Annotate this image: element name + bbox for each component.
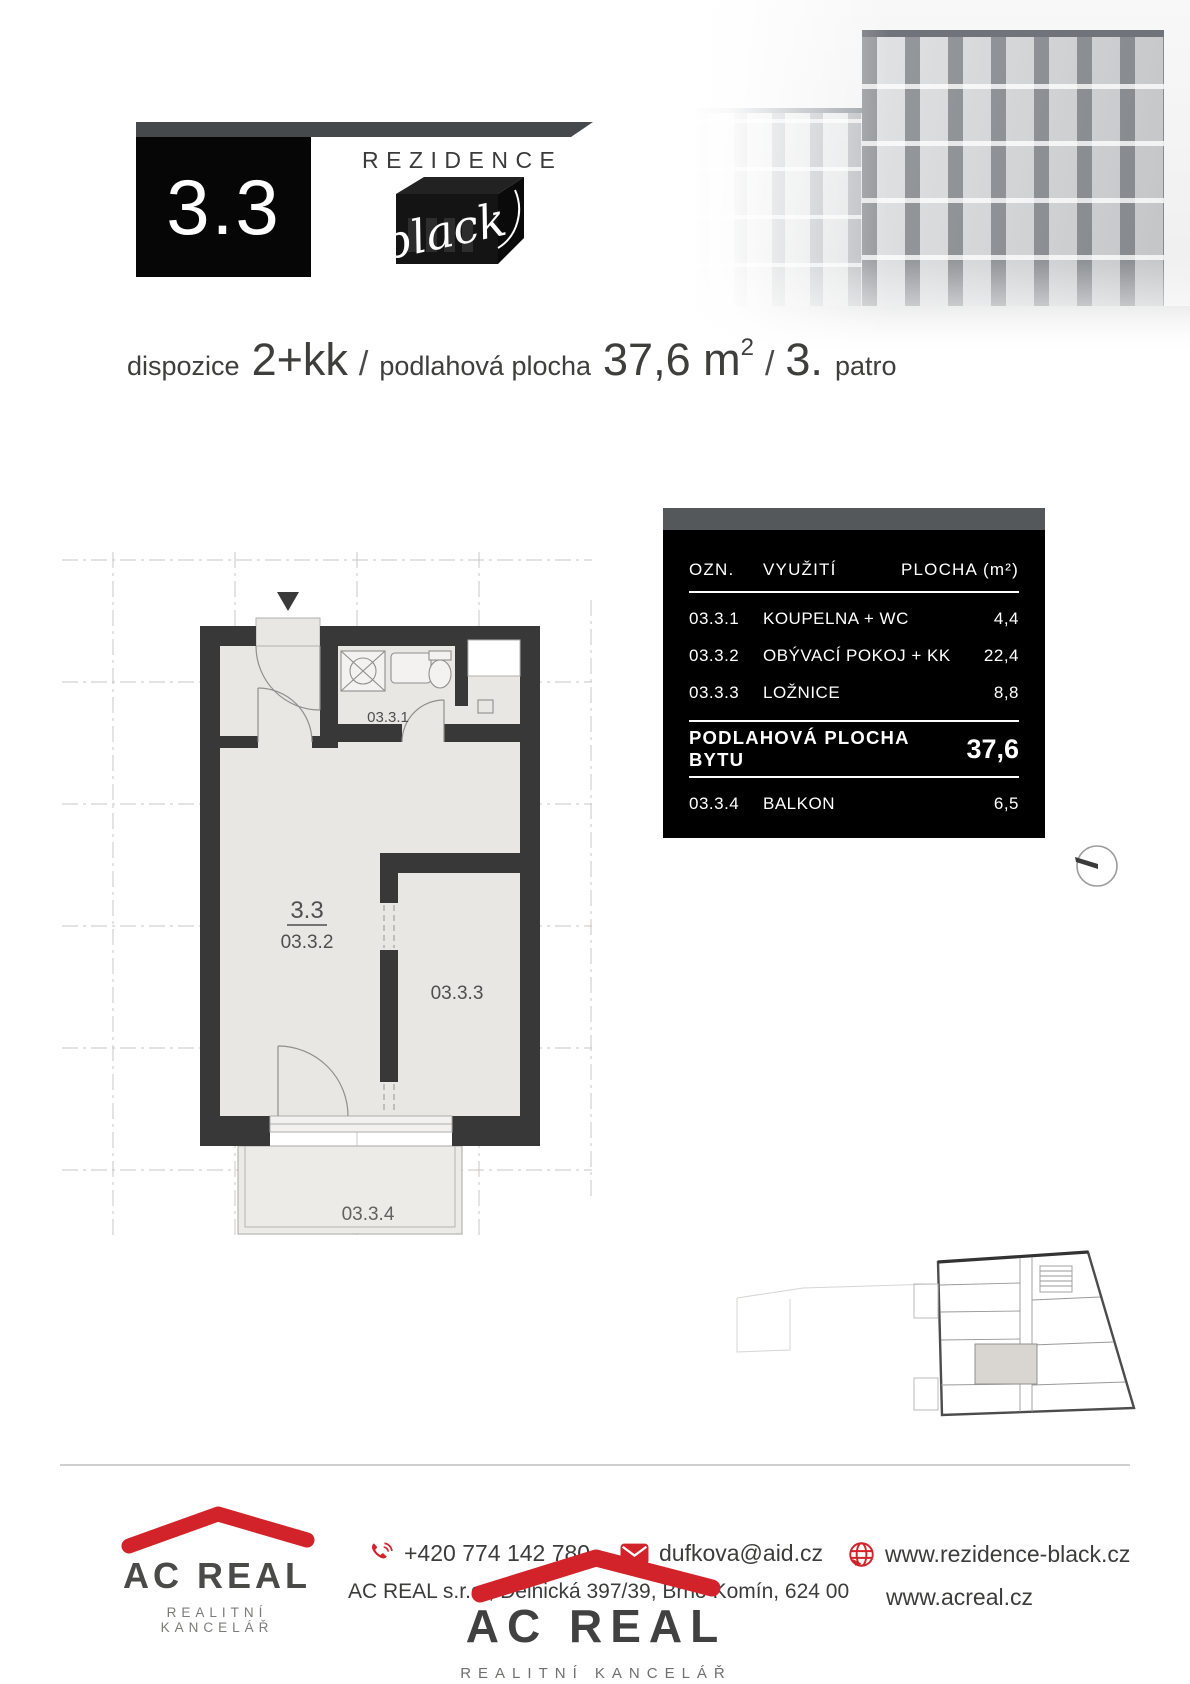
- row-use: KOUPELNA + WC: [763, 609, 994, 629]
- row-use: LOŽNICE: [763, 683, 994, 703]
- area-label: podlahová plocha: [379, 351, 591, 382]
- balcony-window: [270, 1116, 452, 1132]
- header-accent-bar: [136, 122, 593, 137]
- highlighted-unit: [975, 1344, 1037, 1384]
- project-website: www.rezidence-black.cz: [848, 1541, 1130, 1568]
- globe-icon: [848, 1541, 875, 1568]
- black-box-logo-icon: black: [374, 174, 544, 278]
- table-header-row: OZN. VYUŽITÍ PLOCHA (m²): [689, 534, 1019, 593]
- company-website-url[interactable]: www.acreal.cz: [886, 1584, 1033, 1611]
- building-outline: [914, 1252, 1134, 1415]
- brand-logo: black: [374, 174, 544, 283]
- brand-name: REZIDENCE: [362, 147, 562, 174]
- floor-value: 3.: [785, 334, 823, 386]
- row-use: OBÝVACÍ POKOJ + KK: [763, 646, 984, 666]
- layout-label: dispozice: [127, 351, 240, 382]
- toilet-tank-icon: [429, 651, 451, 660]
- separator: /: [765, 345, 774, 384]
- row-ozn: 03.3.3: [689, 683, 763, 703]
- acreal-logo-tagline: REALITNÍ KANCELÁŘ: [112, 1605, 322, 1635]
- table-row: 03.3.1 KOUPELNA + WC 4,4: [689, 600, 1019, 637]
- area-value: 37,6 m2: [603, 334, 754, 386]
- bathroom-label: 03.3.1: [367, 709, 409, 726]
- red-roof-icon: [468, 1544, 724, 1604]
- unit-number: 3.3: [166, 162, 280, 253]
- acreal-logo-text: AC REAL: [112, 1555, 322, 1597]
- entrance-arrow-icon: [277, 592, 299, 611]
- red-roof-icon: [117, 1498, 317, 1556]
- apartment-summary: dispozice 2+kk / podlahová plocha 37,6 m…: [127, 334, 896, 386]
- compass-icon: [1068, 840, 1124, 894]
- acreal-logo: AC REAL REALITNÍ KANCELÁŘ: [112, 1498, 322, 1635]
- separator: /: [359, 345, 368, 384]
- phone-icon: [368, 1541, 394, 1567]
- project-website-url[interactable]: www.rezidence-black.cz: [885, 1541, 1130, 1568]
- row-ozn: 03.3.2: [689, 646, 763, 666]
- table-balcony-row: 03.3.4 BALKON 6,5: [689, 778, 1019, 826]
- row-area: 22,4: [984, 646, 1019, 666]
- building-photo-fade: [688, 0, 1190, 352]
- floor-label: patro: [835, 351, 897, 382]
- row-area: 6,5: [994, 794, 1019, 814]
- floorplan-drawing: 3.3 03.3.2 03.3.1 03.3.3 03.3.4: [55, 540, 600, 1250]
- header-use: VYUŽITÍ: [763, 560, 901, 580]
- bedroom-label: 03.3.3: [431, 983, 484, 1004]
- acreal-center-tagline: REALITNÍ KANCELÁŘ: [420, 1665, 772, 1682]
- living-label: 03.3.2: [281, 932, 334, 953]
- room-area-table: OZN. VYUŽITÍ PLOCHA (m²) 03.3.1 KOUPELNA…: [663, 508, 1045, 838]
- toilet-icon: [429, 660, 451, 688]
- unit-label: 3.3: [290, 897, 323, 924]
- balcony-label: 03.3.4: [342, 1204, 395, 1225]
- acreal-center-text: AC REAL: [420, 1599, 772, 1653]
- brochure-page: 3.3 REZIDENCE black dispozice 2+kk / pod…: [0, 0, 1190, 1684]
- entrance-recess: [256, 618, 320, 646]
- row-area: 8,8: [994, 683, 1019, 703]
- total-label: PODLAHOVÁ PLOCHA BYTU: [689, 727, 966, 771]
- floor-location-miniplan: [700, 1140, 1140, 1425]
- header-area: PLOCHA (m²): [901, 560, 1019, 580]
- table-accent-strip: [663, 508, 1045, 530]
- row-area: 4,4: [994, 609, 1019, 629]
- table-row: 03.3.3 LOŽNICE 8,8: [689, 674, 1019, 711]
- row-ozn: 03.3.4: [689, 794, 763, 814]
- row-use: BALKON: [763, 794, 994, 814]
- footer-divider: [60, 1464, 1130, 1466]
- window-niche: [468, 640, 520, 676]
- sink-icon: [391, 653, 431, 683]
- table-row: 03.3.2 OBÝVACÍ POKOJ + KK 22,4: [689, 637, 1019, 674]
- building-photo: [688, 0, 1190, 352]
- total-value: 37,6: [966, 734, 1019, 765]
- acreal-logo-center: AC REAL REALITNÍ KANCELÁŘ: [420, 1544, 772, 1682]
- table-total-row: PODLAHOVÁ PLOCHA BYTU 37,6: [689, 722, 1019, 778]
- row-ozn: 03.3.1: [689, 609, 763, 629]
- header-ozn: OZN.: [689, 560, 763, 580]
- layout-value: 2+kk: [252, 334, 348, 386]
- unit-number-box: 3.3: [136, 137, 311, 277]
